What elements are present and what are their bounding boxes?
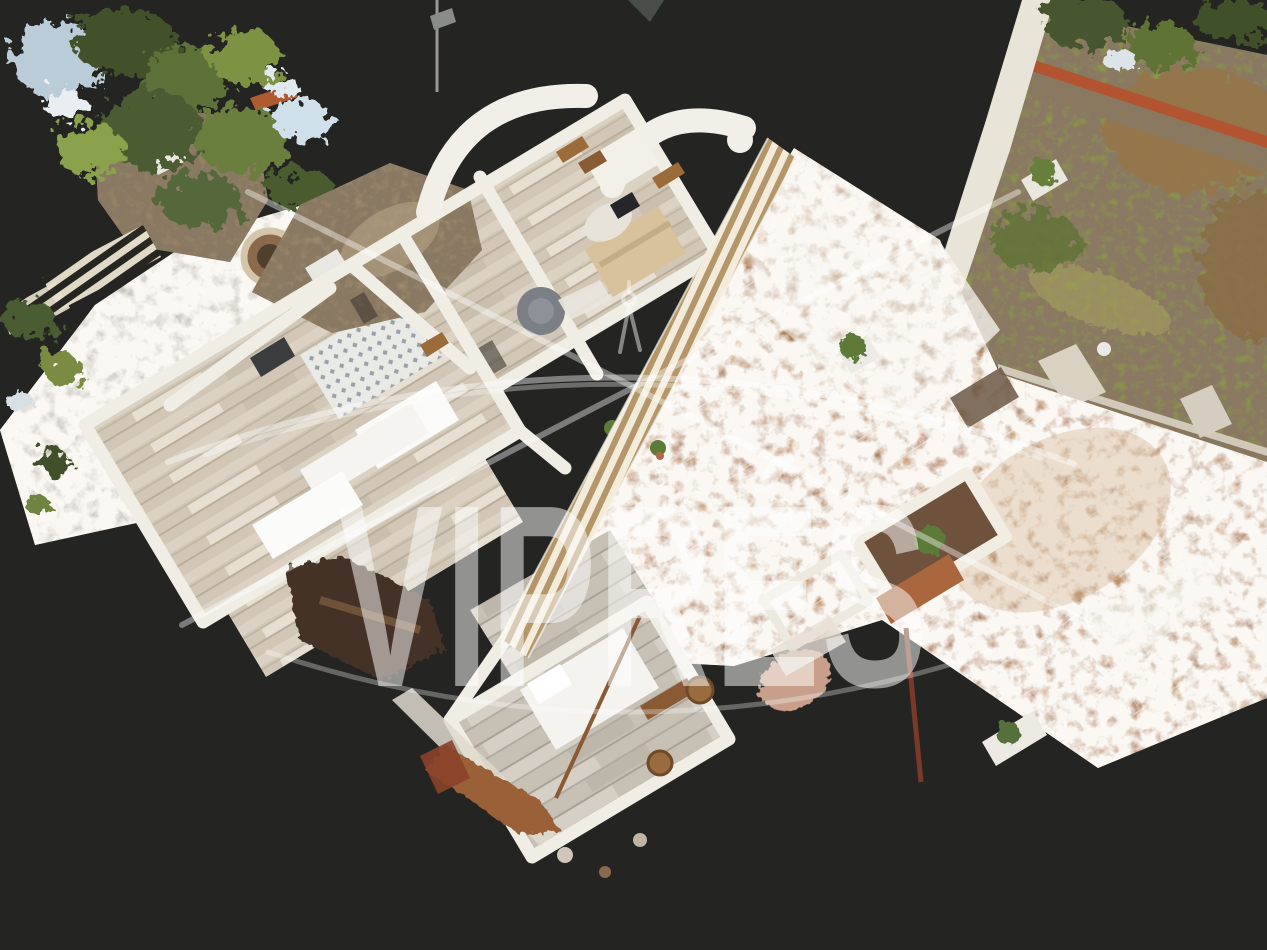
vegetation-shard [4, 300, 56, 340]
trees-top-left [12, 8, 334, 228]
plant [996, 721, 1020, 745]
plant [840, 334, 866, 360]
watermark-text: VIPRÉS [337, 452, 929, 742]
chair [648, 751, 672, 775]
dollhouse-3d-view[interactable]: VIPRÉS [0, 0, 1267, 950]
plant [1029, 158, 1057, 186]
satellite-dish [1097, 342, 1111, 356]
scene-svg: VIPRÉS [0, 0, 1267, 950]
